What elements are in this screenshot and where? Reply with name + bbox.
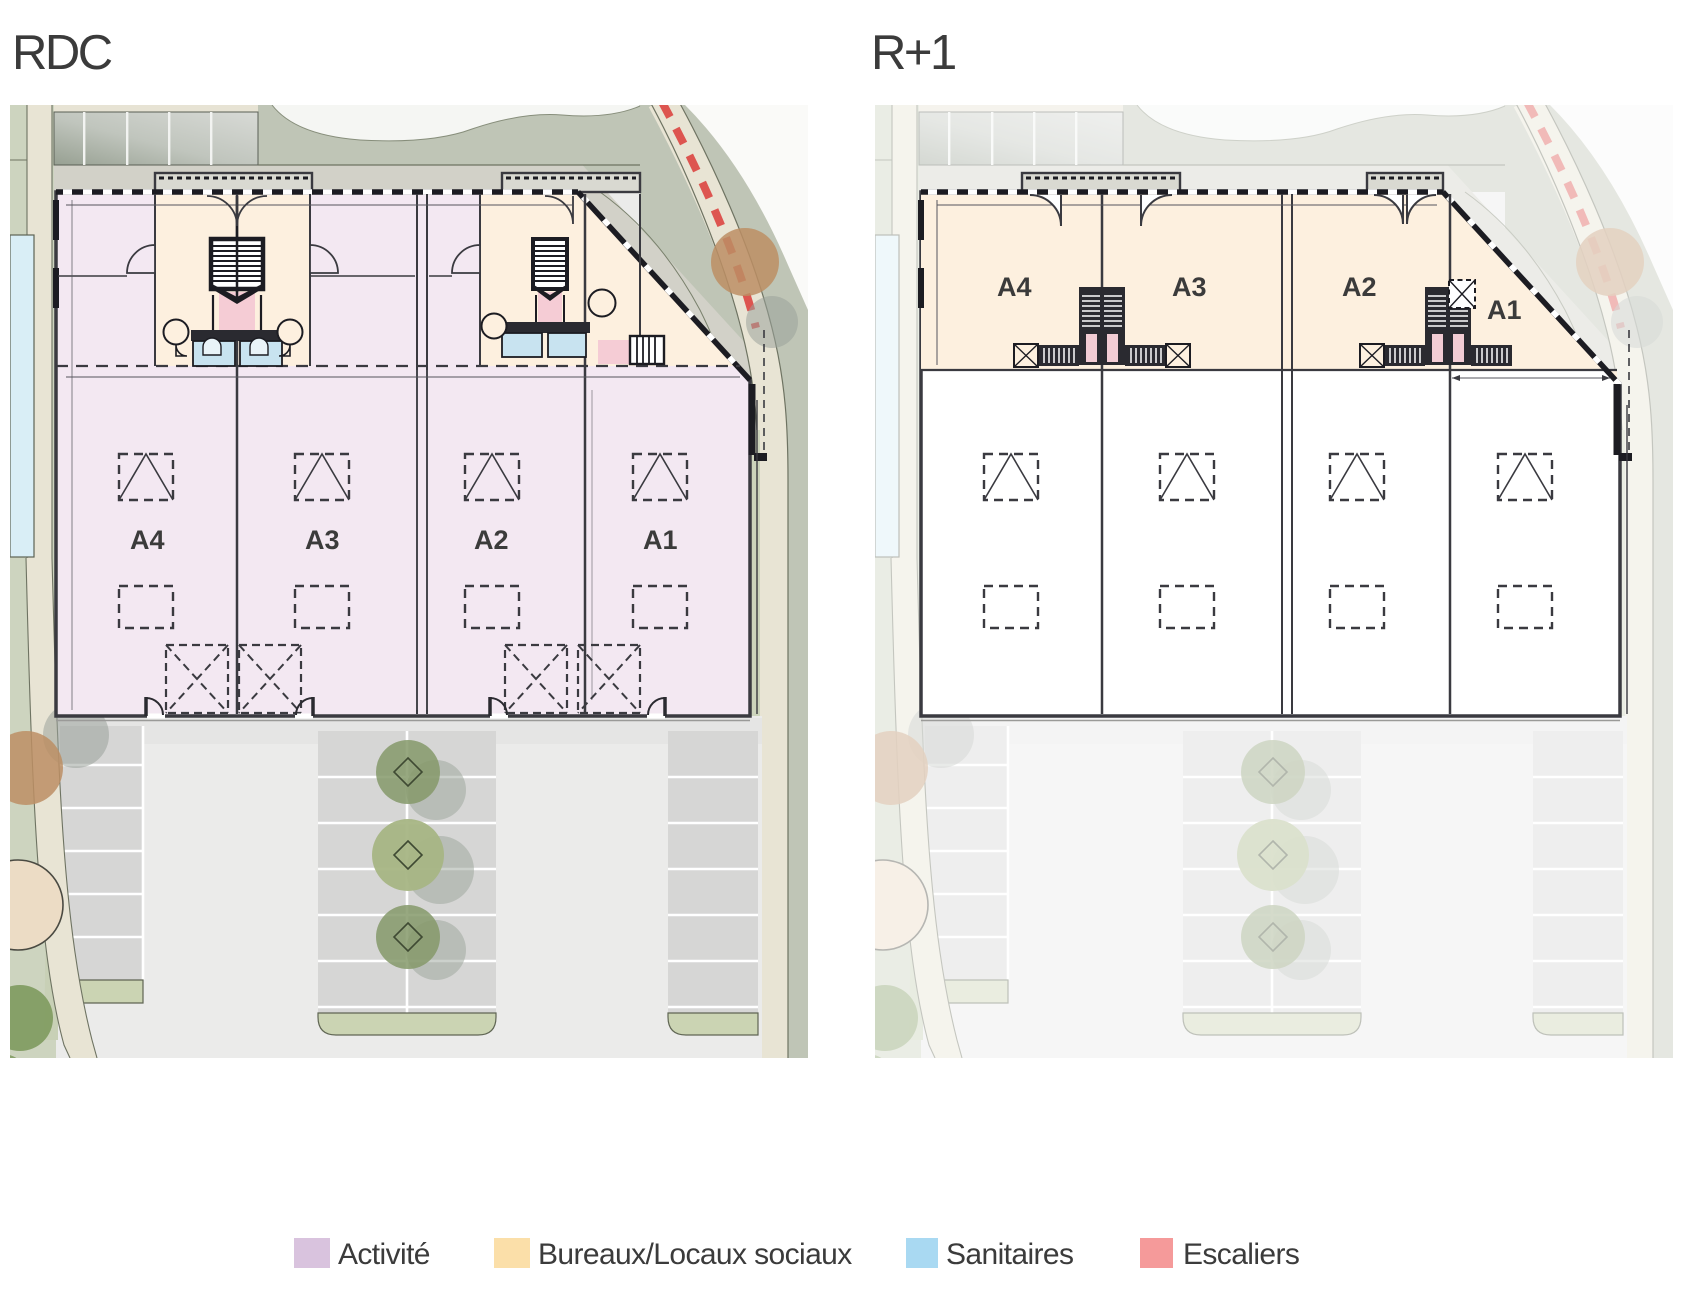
- svg-text:A3: A3: [305, 525, 340, 555]
- svg-text:A2: A2: [1342, 272, 1377, 302]
- svg-text:Escaliers: Escaliers: [1183, 1238, 1299, 1271]
- svg-text:Bureaux/Locaux sociaux: Bureaux/Locaux sociaux: [538, 1238, 852, 1271]
- svg-text:Sanitaires: Sanitaires: [946, 1238, 1073, 1271]
- svg-text:A1: A1: [1487, 295, 1522, 325]
- svg-text:A3: A3: [1172, 272, 1207, 302]
- svg-text:A4: A4: [130, 525, 165, 555]
- svg-text:Activité: Activité: [338, 1238, 430, 1271]
- svg-text:A4: A4: [997, 272, 1032, 302]
- svg-text:A2: A2: [474, 525, 509, 555]
- svg-text:A1: A1: [643, 525, 678, 555]
